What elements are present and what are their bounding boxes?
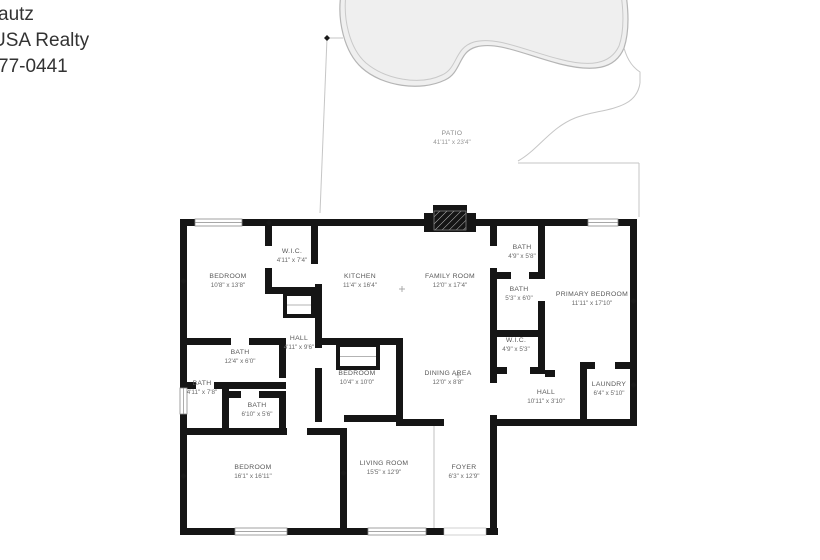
window	[235, 528, 287, 535]
svg-text:BATH: BATH	[193, 380, 212, 387]
svg-text:12'4" x 6'0": 12'4" x 6'0"	[224, 358, 255, 365]
window	[195, 219, 242, 226]
closet	[338, 345, 378, 368]
svg-text:W.I.C.: W.I.C.	[506, 337, 526, 344]
svg-text:10'11" x 3'10": 10'11" x 3'10"	[527, 398, 565, 405]
svg-text:4'9" x 5'8": 4'9" x 5'8"	[508, 253, 536, 260]
svg-text:12'0" x 17'4": 12'0" x 17'4"	[433, 282, 468, 289]
svg-text:4'9" x 5'3": 4'9" x 5'3"	[502, 346, 530, 353]
svg-text:FAMILY ROOM: FAMILY ROOM	[425, 273, 475, 280]
svg-text:BEDROOM: BEDROOM	[234, 464, 271, 471]
entry-door-opening	[444, 528, 486, 535]
svg-text:BEDROOM: BEDROOM	[338, 370, 375, 377]
svg-text:6'10" x 5'6": 6'10" x 5'6"	[241, 411, 272, 418]
svg-text:BATH: BATH	[510, 286, 529, 293]
fireplace	[424, 205, 476, 232]
svg-text:HALL: HALL	[537, 389, 555, 396]
svg-text:KITCHEN: KITCHEN	[344, 273, 376, 280]
svg-text:4'11" x 7'8": 4'11" x 7'8"	[187, 389, 218, 396]
floor-plan: PATIO 41'11" x 23'4"	[0, 0, 820, 560]
svg-text:BATH: BATH	[248, 402, 267, 409]
svg-text:BATH: BATH	[231, 349, 250, 356]
svg-text:10'8" x 13'8": 10'8" x 13'8"	[211, 282, 246, 289]
svg-text:LIVING ROOM: LIVING ROOM	[360, 460, 409, 467]
pool	[340, 0, 628, 86]
svg-text:PRIMARY BEDROOM: PRIMARY BEDROOM	[556, 291, 628, 298]
patio-name: PATIO	[442, 130, 463, 137]
patio-label: PATIO 41'11" x 23'4"	[433, 130, 471, 146]
svg-text:12'0" x 8'8": 12'0" x 8'8"	[432, 379, 463, 386]
svg-text:15'5" x 12'9": 15'5" x 12'9"	[367, 469, 402, 476]
svg-text:4'11" x 9'6": 4'11" x 9'6"	[284, 344, 315, 351]
closet	[285, 294, 313, 316]
svg-text:5'3" x 6'0": 5'3" x 6'0"	[505, 295, 533, 302]
svg-text:DINING AREA: DINING AREA	[424, 370, 471, 377]
house-footprint	[180, 219, 637, 535]
svg-text:HALL: HALL	[290, 335, 308, 342]
svg-text:4'11" x 7'4": 4'11" x 7'4"	[277, 257, 308, 264]
svg-text:FOYER: FOYER	[452, 464, 477, 471]
svg-text:BATH: BATH	[513, 244, 532, 251]
svg-text:11'11" x 17'10": 11'11" x 17'10"	[572, 300, 613, 307]
svg-text:10'4" x 10'0": 10'4" x 10'0"	[340, 379, 375, 386]
window	[588, 219, 618, 226]
svg-text:LAUNDRY: LAUNDRY	[592, 381, 627, 388]
svg-text:6'3" x 12'9": 6'3" x 12'9"	[448, 473, 479, 480]
svg-text:BEDROOM: BEDROOM	[209, 273, 246, 280]
svg-text:11'4" x 16'4": 11'4" x 16'4"	[343, 282, 377, 289]
patio-dims: 41'11" x 23'4"	[433, 139, 471, 146]
svg-text:W.I.C.: W.I.C.	[282, 248, 302, 255]
svg-text:16'1" x 16'11": 16'1" x 16'11"	[234, 473, 272, 480]
svg-text:6'4" x 5'10": 6'4" x 5'10"	[593, 390, 624, 397]
window	[368, 528, 426, 535]
